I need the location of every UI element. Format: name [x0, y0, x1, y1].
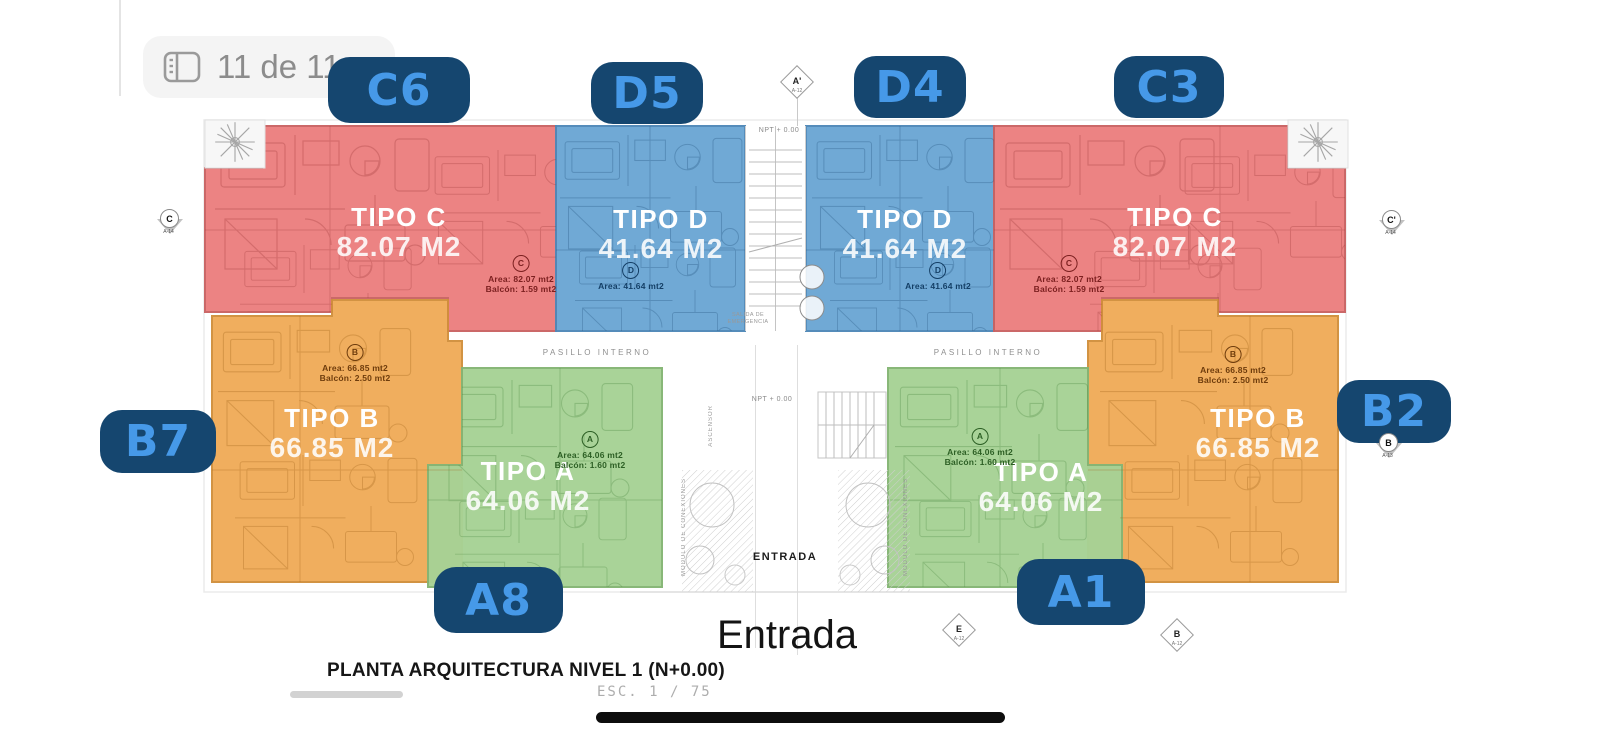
- pasillo-interno-right: PASILLO INTERNO: [934, 348, 1042, 357]
- pasillo-interno-left: PASILLO INTERNO: [543, 348, 651, 357]
- floorplan-viewer: 11 de 11 C6 D5 D4 C3 B7 A8 A1 B2 TIPO C8…: [0, 0, 1600, 738]
- entrance-landscape-right: [838, 470, 910, 592]
- unit-detail-d4: D Area: 41.64 mt2: [905, 262, 971, 292]
- scale-label: ESC. 1 / 75: [597, 684, 712, 700]
- title-underline-bar: [290, 691, 403, 698]
- grid-marker-right-b: B A-13: [1371, 431, 1407, 473]
- grid-marker-bottom-e: E A-12: [941, 613, 977, 655]
- unit-badge-d5[interactable]: D5: [591, 62, 703, 124]
- entrada-plan-label: ENTRADA: [753, 551, 817, 563]
- home-indicator-bar[interactable]: [596, 712, 1005, 723]
- grid-marker-right: C' A-14: [1374, 208, 1410, 250]
- unit-badge-c3[interactable]: C3: [1114, 56, 1224, 118]
- npt-level-mid: NPT + 0.00: [752, 396, 792, 403]
- unit-badge-c6[interactable]: C6: [328, 57, 470, 123]
- ascensor-label: ASCENSOR: [708, 405, 714, 447]
- unit-label-d4: TIPO D41.64 M2: [843, 206, 968, 263]
- corner-tree-right: [1288, 120, 1348, 168]
- modulo-conexiones-left: MODULO DE CONEXIONES: [681, 478, 687, 576]
- grid-marker-bottom-b: B A-12: [1159, 618, 1195, 660]
- unit-detail-a8: A Area: 64.06 mt2 Balcón: 1.60 mt2: [555, 431, 626, 471]
- corner-tree-left: [205, 120, 265, 168]
- column-circle: [800, 265, 824, 289]
- stair-mid: [818, 392, 886, 458]
- unit-label-a1: TIPO A64.06 M2: [979, 459, 1104, 516]
- unit-badge-a1[interactable]: A1: [1017, 559, 1145, 625]
- unit-detail-a1: A Area: 64.06 mt2 Balcón: 1.60 mt2: [945, 428, 1016, 468]
- entrance-label: Entrada: [717, 613, 857, 658]
- unit-detail-b2: B Area: 66.85 mt2 Balcón: 2.50 mt2: [1198, 346, 1269, 386]
- unit-label-c3: TIPO C82.07 M2: [1113, 204, 1238, 261]
- column-circle: [800, 296, 824, 320]
- unit-label-c6: TIPO C82.07 M2: [337, 204, 462, 261]
- entrance-landscape-left: [682, 470, 753, 592]
- unit-label-b2: TIPO B66.85 M2: [1196, 405, 1321, 462]
- stairwell-top: [746, 126, 806, 331]
- unit-detail-b7: B Area: 66.85 mt2 Balcón: 2.50 mt2: [320, 344, 391, 384]
- plan-title: PLANTA ARQUITECTURA NIVEL 1 (N+0.00): [327, 660, 725, 682]
- grid-marker-top: A' A-12: [779, 65, 815, 107]
- salida-emergencia-label: SALIDA DE EMERGENCIA: [720, 312, 776, 326]
- unit-badge-a8[interactable]: A8: [434, 567, 563, 633]
- unit-label-d5: TIPO D41.64 M2: [599, 206, 724, 263]
- unit-badge-b7[interactable]: B7: [100, 410, 216, 473]
- unit-detail-c6: C Area: 82.07 mt2 Balcón: 1.59 mt2: [486, 255, 557, 295]
- unit-detail-d5: D Area: 41.64 mt2: [598, 262, 664, 292]
- grid-marker-left: C A-14: [152, 207, 188, 249]
- npt-level-top: NPT + 0.00: [759, 127, 799, 134]
- modulo-conexiones-right: MODULO DE CONEXIONES: [903, 478, 909, 576]
- pages-icon: [163, 51, 201, 83]
- unit-detail-c3: C Area: 82.07 mt2 Balcón: 1.59 mt2: [1034, 255, 1105, 295]
- page-indicator-label: 11 de 11: [217, 48, 341, 86]
- unit-label-b7: TIPO B66.85 M2: [270, 405, 395, 462]
- unit-badge-d4[interactable]: D4: [854, 56, 966, 118]
